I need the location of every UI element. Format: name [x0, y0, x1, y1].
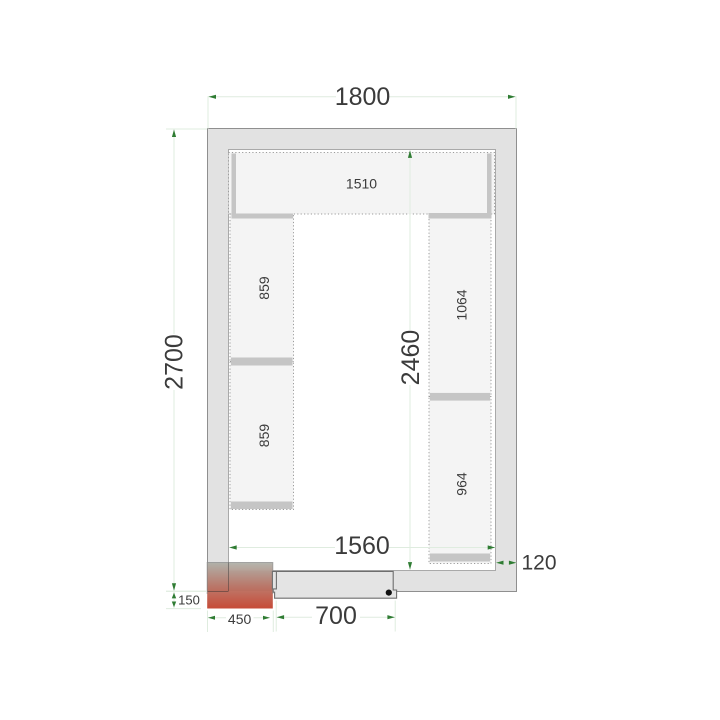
- svg-text:859: 859: [256, 424, 272, 448]
- svg-text:1560: 1560: [334, 532, 390, 560]
- svg-text:859: 859: [256, 276, 272, 300]
- svg-text:1510: 1510: [346, 176, 377, 192]
- svg-text:150: 150: [178, 593, 200, 608]
- svg-text:450: 450: [228, 611, 252, 627]
- svg-text:2700: 2700: [160, 334, 188, 390]
- svg-text:1064: 1064: [454, 289, 470, 320]
- svg-text:964: 964: [454, 472, 470, 496]
- svg-text:1800: 1800: [335, 83, 391, 111]
- svg-text:120: 120: [521, 552, 556, 575]
- svg-text:700: 700: [315, 602, 357, 630]
- svg-text:2460: 2460: [397, 330, 425, 386]
